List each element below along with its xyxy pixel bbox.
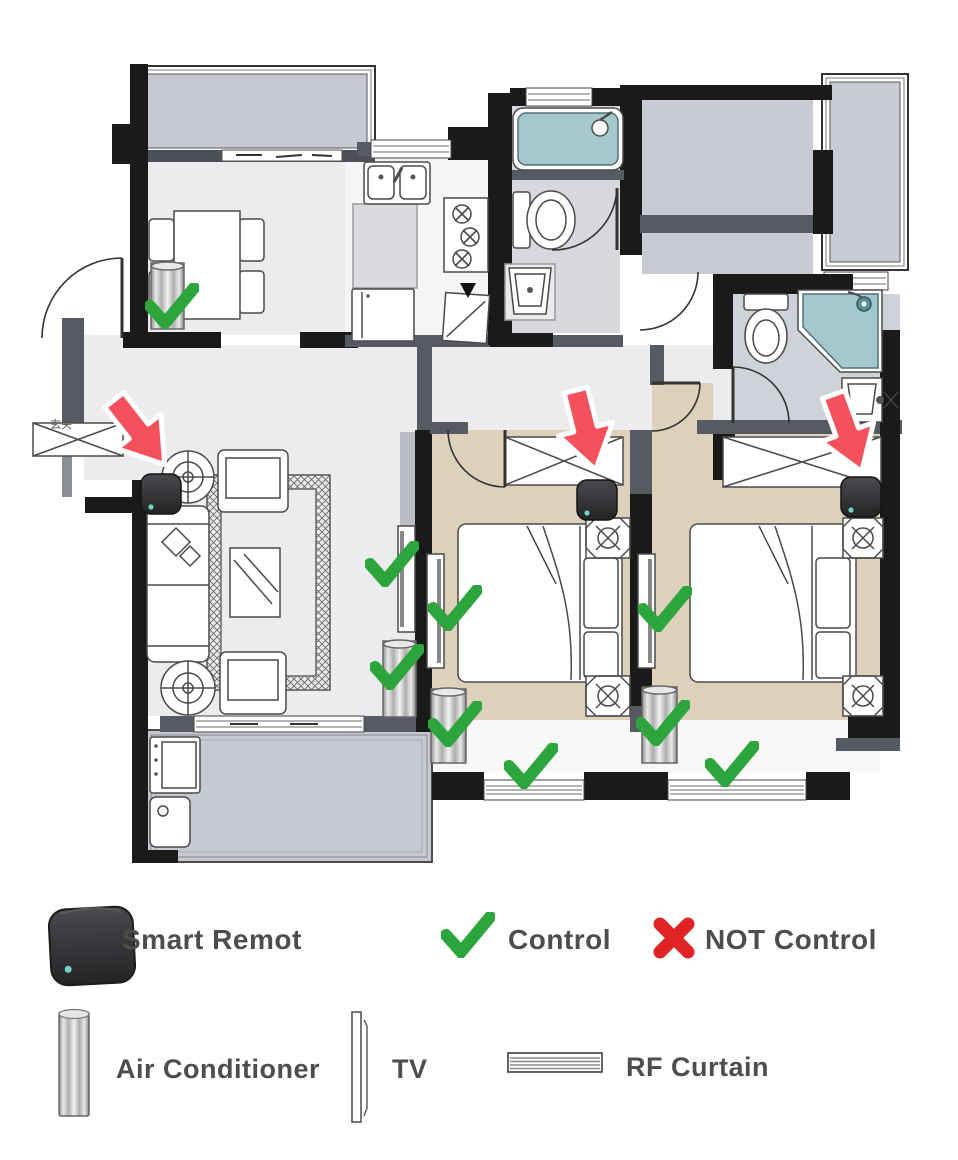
rf-curtain-label: RF Curtain — [626, 1052, 769, 1083]
balcony-right — [822, 74, 908, 290]
bedroom1-nightstand-top — [586, 518, 630, 558]
living-tv — [398, 526, 415, 632]
bedroom1-wardrobe — [505, 437, 623, 485]
bathroom1-window — [526, 88, 592, 106]
tv-icon — [348, 1008, 372, 1133]
control-label: Control — [508, 924, 611, 956]
study-door — [640, 272, 698, 330]
living-sofa — [147, 506, 209, 662]
bedroom2-air-conditioner — [642, 686, 677, 763]
balcony-top-left — [137, 66, 375, 162]
not-control-label: NOT Control — [705, 924, 877, 956]
bedroom1-tv — [427, 554, 444, 668]
not-control-x-icon — [650, 914, 698, 967]
floor-plan-svg: 玄关 — [0, 0, 958, 880]
tv-label: TV — [392, 1054, 428, 1085]
floor-plan: 玄关 — [0, 0, 958, 880]
laundry-unit — [150, 797, 190, 847]
smart-remote-floorplan-page: 玄关 — [0, 0, 958, 1160]
bedroom1-curtain-window — [484, 780, 584, 800]
living-balcony-window — [194, 716, 364, 732]
bedroom2-nightstand-top — [843, 518, 883, 558]
smart-remote-label: Smart Remot — [122, 924, 302, 956]
living-armchair-bottom — [220, 652, 286, 714]
living-coffee-table — [230, 548, 280, 617]
bedroom2-curtain-window — [668, 780, 806, 800]
kitchen-counter — [353, 204, 417, 288]
bedroom1-nightstand-bottom — [586, 676, 630, 716]
rf-curtain-icon — [506, 1048, 610, 1083]
kitchen-stove — [444, 198, 488, 272]
bedroom2-bed — [690, 524, 856, 682]
air-conditioner-label: Air Conditioner — [116, 1054, 320, 1085]
bedroom2-nightstand-bottom — [843, 676, 883, 716]
living-armchair-top — [218, 450, 288, 512]
bathroom1-bathtub — [513, 108, 623, 170]
entry-label: 玄关 — [50, 417, 72, 431]
air-conditioner-icon — [55, 1004, 95, 1129]
kitchen-fridge — [352, 289, 414, 341]
entry-shoe-cabinet — [33, 423, 123, 456]
bedroom1-air-conditioner — [431, 688, 466, 763]
kitchen-window — [371, 140, 451, 158]
bedroom2-wardrobe — [723, 437, 881, 487]
washing-machine — [150, 737, 200, 793]
control-check-icon — [441, 912, 495, 963]
living-side-table-bottom — [161, 661, 215, 715]
kitchen-cabinet — [442, 293, 489, 344]
dining-air-conditioner — [151, 262, 184, 329]
bathroom2-toilet — [744, 294, 788, 363]
bedroom2-tv — [638, 554, 655, 668]
kitchen-sink — [364, 162, 430, 204]
living-air-conditioner — [383, 640, 416, 717]
living-side-table-top — [162, 451, 214, 503]
bathroom1-toilet — [513, 191, 575, 249]
bathroom1-sink — [505, 264, 555, 320]
